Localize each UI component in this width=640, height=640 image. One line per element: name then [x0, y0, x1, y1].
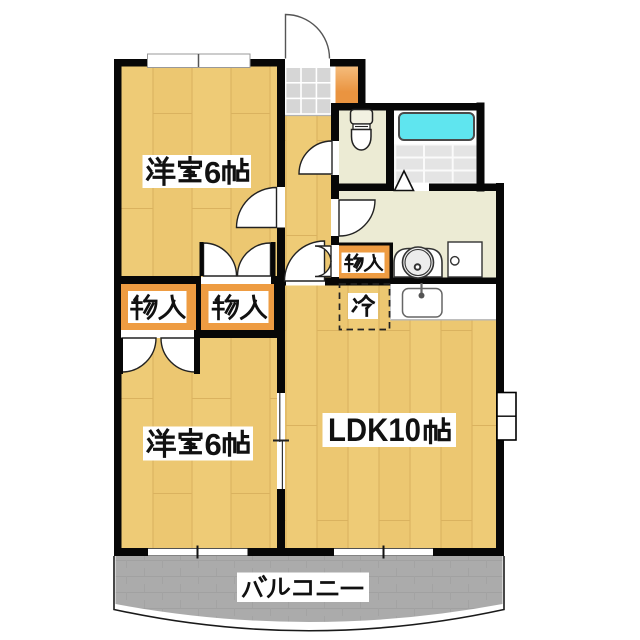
svg-text:6: 6 — [204, 155, 221, 190]
svg-text:LDK10: LDK10 — [328, 412, 421, 448]
svg-text:6: 6 — [205, 427, 222, 462]
